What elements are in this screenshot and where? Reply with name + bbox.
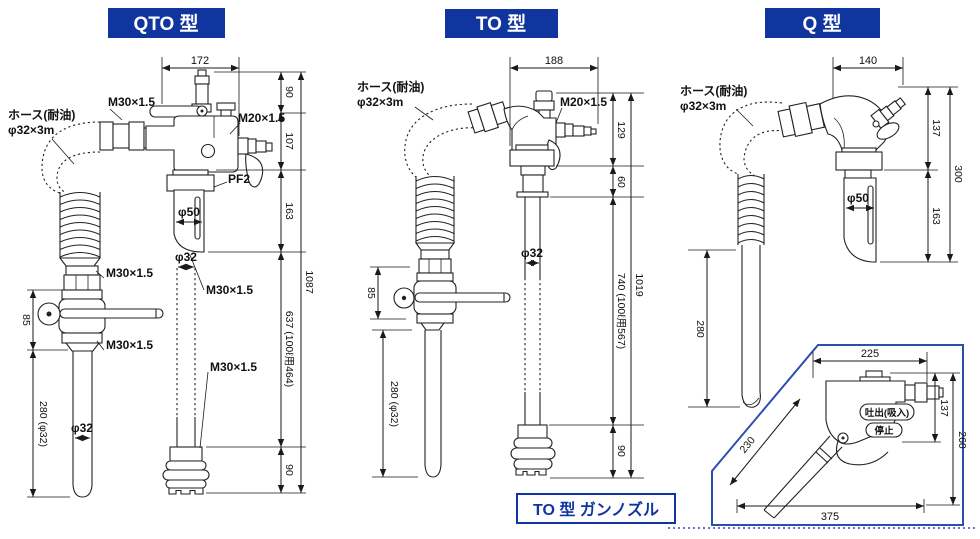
to-seg-740: 740 (100ℓ用567) bbox=[615, 273, 627, 349]
to-dim-188: 188 bbox=[545, 55, 563, 67]
qto-label-m30-mid: M30×1.5 bbox=[206, 283, 253, 297]
q-title: Q 型 bbox=[802, 12, 841, 35]
qto-hose-label-2: φ32×3m bbox=[8, 123, 54, 137]
qto-hose-label-1: ホース(耐油) bbox=[8, 107, 75, 122]
to-title: TO 型 bbox=[476, 12, 526, 35]
to-hose-label-1: ホース(耐油) bbox=[357, 79, 424, 94]
q-dim-140: 140 bbox=[859, 55, 877, 67]
qto-top-lever bbox=[150, 106, 202, 117]
qto-seg-163: 163 bbox=[283, 202, 295, 220]
q-hose-label-2: φ32×3m bbox=[680, 99, 726, 113]
qto-bottom-nut bbox=[170, 447, 202, 461]
to-left-valve bbox=[417, 273, 453, 281]
qto-left-valve bbox=[62, 290, 102, 299]
q-dim-280: 280 bbox=[694, 320, 706, 338]
q-dim-total: 300 bbox=[952, 165, 964, 183]
q-label-phi50: φ50 bbox=[847, 191, 869, 205]
qto-label-m30-hose: M30×1.5 bbox=[108, 95, 155, 109]
gun-inlet bbox=[905, 385, 915, 400]
qto-pf2-nut bbox=[167, 175, 214, 191]
qto-dim-total: 1087 bbox=[303, 270, 315, 294]
gun-dim-225: 225 bbox=[861, 348, 879, 360]
to-label-m20: M20×1.5 bbox=[560, 95, 607, 109]
gun-dim-375: 375 bbox=[821, 511, 839, 523]
gun-label-discharge: 吐出(吸入) bbox=[865, 407, 909, 419]
qto-dim-280: 280 (φ32) bbox=[37, 401, 49, 447]
to-seg-90: 90 bbox=[615, 445, 627, 457]
panel-headers: QTO 型 TO 型 Q 型 bbox=[108, 8, 880, 38]
q-hose-pipe bbox=[742, 245, 760, 395]
to-hose-label-2: φ32×3m bbox=[357, 95, 403, 109]
qto-dim-85: 85 bbox=[20, 314, 32, 326]
gun-dim-260: 260 bbox=[956, 431, 968, 449]
qto-bellows bbox=[166, 461, 206, 470]
q-seg-137: 137 bbox=[930, 119, 942, 137]
to-main-nut bbox=[510, 150, 554, 166]
gun-title: TO 型 ガンノズル bbox=[533, 500, 659, 519]
q-hose bbox=[720, 102, 782, 174]
technical-diagram-page: QTO 型 TO 型 Q 型 bbox=[0, 0, 980, 539]
to-m20-outlet bbox=[556, 123, 565, 137]
qto-m20-outlet bbox=[238, 138, 248, 154]
qto-head-body bbox=[146, 116, 238, 172]
qto-seg-107: 107 bbox=[283, 132, 295, 150]
qto-title: QTO 型 bbox=[133, 12, 198, 35]
qto-label-m30-left-top: M30×1.5 bbox=[106, 266, 153, 280]
to-drawing bbox=[394, 91, 596, 477]
to-dim-280: 280 (φ32) bbox=[388, 381, 400, 427]
qto-label-phi32-center: φ32 bbox=[175, 250, 197, 264]
qto-valve-handle bbox=[60, 309, 163, 318]
to-seg-129: 129 bbox=[615, 121, 627, 139]
to-vent-valve bbox=[536, 91, 552, 101]
gun-dim-137: 137 bbox=[938, 399, 950, 417]
qto-label-m20: M20×1.5 bbox=[238, 111, 285, 125]
qto-label-pf2: PF2 bbox=[228, 172, 250, 186]
qto-seg-90b: 90 bbox=[283, 464, 295, 476]
qto-label-phi32-left: φ32 bbox=[71, 421, 93, 435]
qto-seg-90a: 90 bbox=[283, 86, 295, 98]
q-seg-163: 163 bbox=[930, 207, 942, 225]
qto-label-phi50: φ50 bbox=[178, 205, 200, 219]
q-hose-label-1: ホース(耐油) bbox=[680, 83, 747, 98]
to-bellows bbox=[514, 438, 552, 448]
to-label-phi32: φ32 bbox=[521, 246, 543, 260]
qto-vent-valve bbox=[198, 70, 206, 76]
q-main-nut bbox=[836, 152, 882, 170]
to-valve-handle bbox=[415, 293, 510, 302]
to-dim-total: 1019 bbox=[633, 273, 645, 297]
qto-seg-637: 637 (100ℓ用464) bbox=[283, 311, 295, 387]
qto-label-m30-left-bottom: M30×1.5 bbox=[106, 338, 153, 352]
to-bottom-nut bbox=[518, 425, 547, 438]
to-left-pipe bbox=[425, 330, 441, 465]
qto-dim-172: 172 bbox=[191, 55, 209, 67]
to-seg-60: 60 bbox=[615, 176, 627, 188]
qto-left-pipe bbox=[73, 351, 92, 485]
gun-label-stop: 停止 bbox=[874, 425, 894, 437]
qto-label-m30-bottom: M30×1.5 bbox=[210, 360, 257, 374]
to-hose bbox=[405, 104, 472, 177]
to-dim-85: 85 bbox=[365, 287, 377, 299]
diagram-canvas: QTO 型 TO 型 Q 型 bbox=[0, 0, 980, 539]
